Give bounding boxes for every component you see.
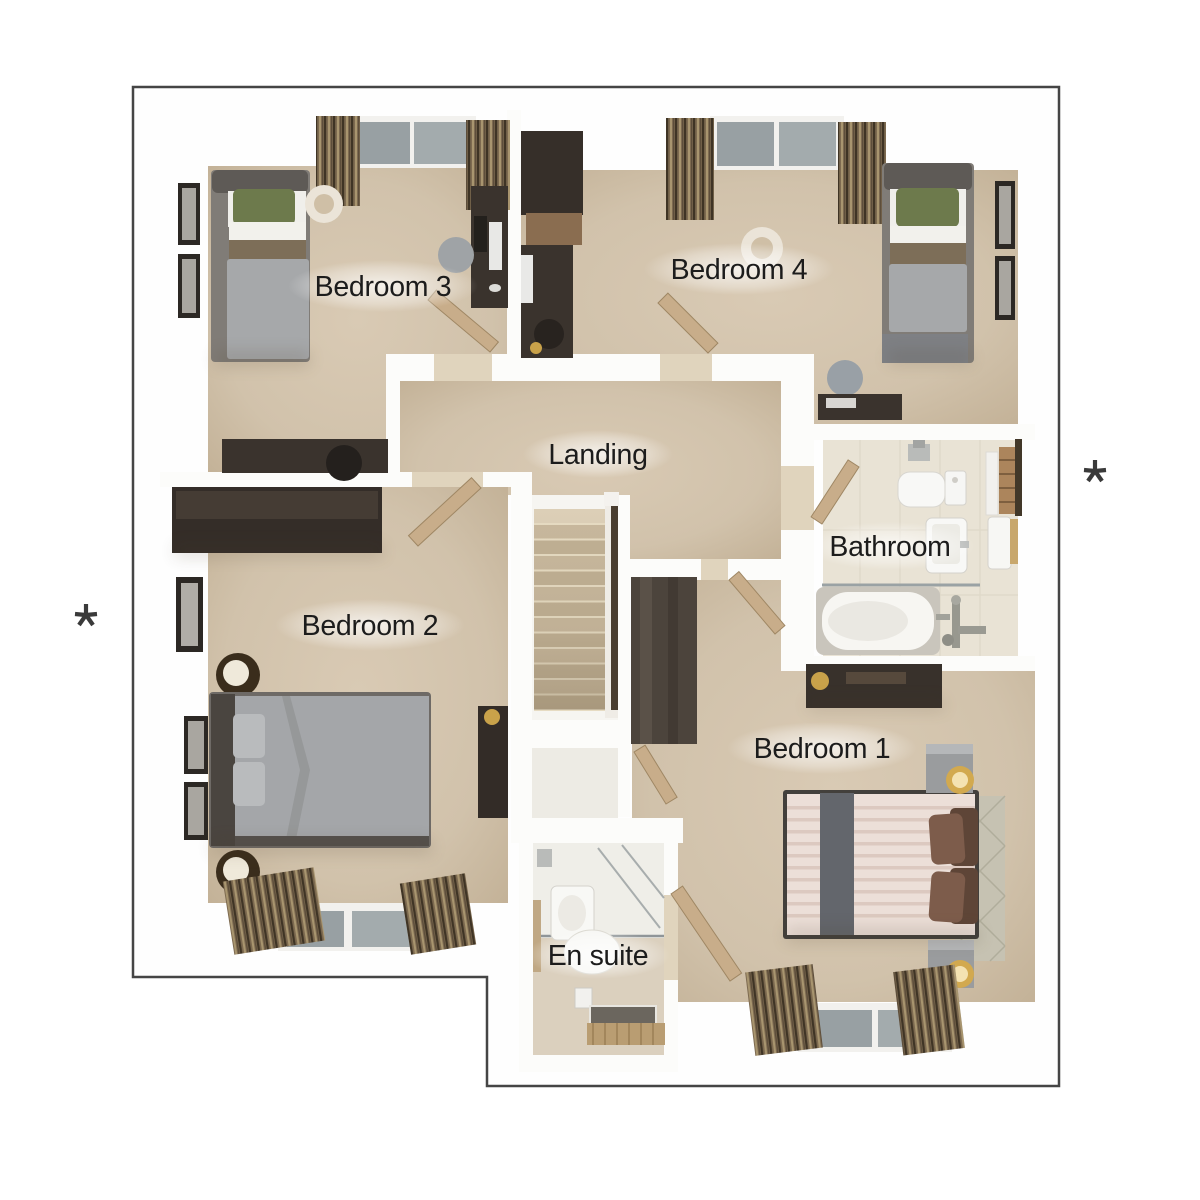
svg-text:Bedroom 4: Bedroom 4 xyxy=(671,254,808,286)
svg-text:Bedroom 2: Bedroom 2 xyxy=(302,610,439,642)
svg-text:Bedroom 3: Bedroom 3 xyxy=(315,271,452,303)
svg-text:Bedroom 1: Bedroom 1 xyxy=(754,733,891,765)
svg-text:Landing: Landing xyxy=(548,439,647,471)
svg-text:En suite: En suite xyxy=(548,940,649,972)
svg-text:Bathroom: Bathroom xyxy=(829,531,950,563)
